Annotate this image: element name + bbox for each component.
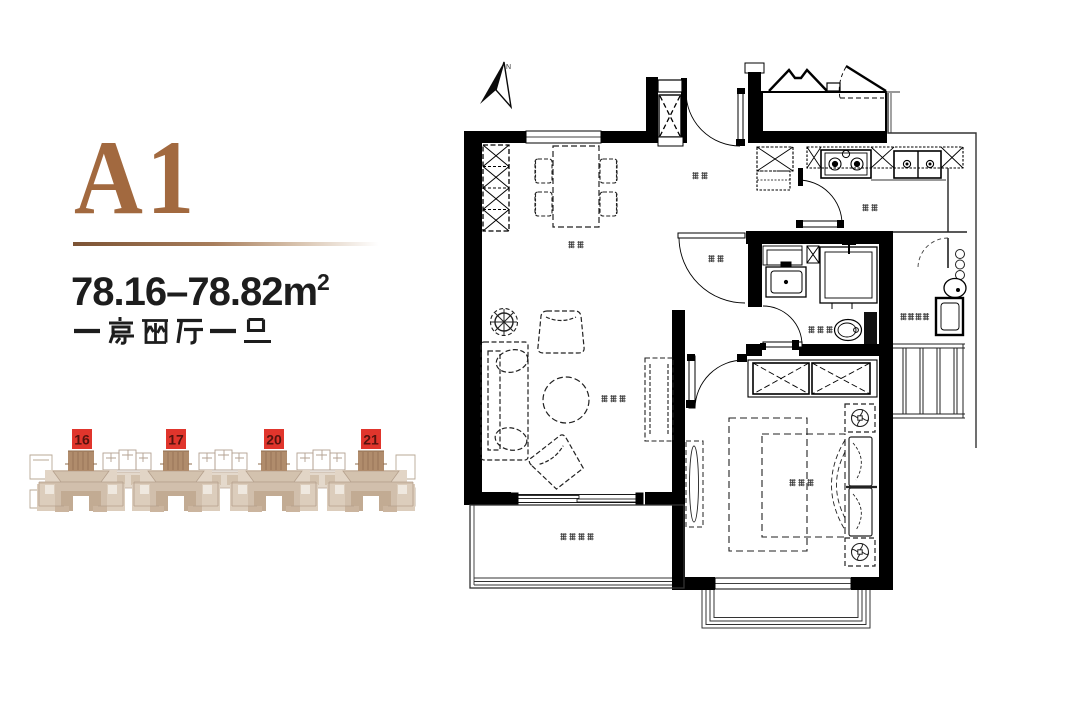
svg-text:17: 17 <box>168 432 184 448</box>
svg-text:20: 20 <box>266 432 282 448</box>
svg-text:21: 21 <box>363 432 379 448</box>
svg-text:16: 16 <box>74 432 90 448</box>
svg-text:N: N <box>506 64 511 71</box>
